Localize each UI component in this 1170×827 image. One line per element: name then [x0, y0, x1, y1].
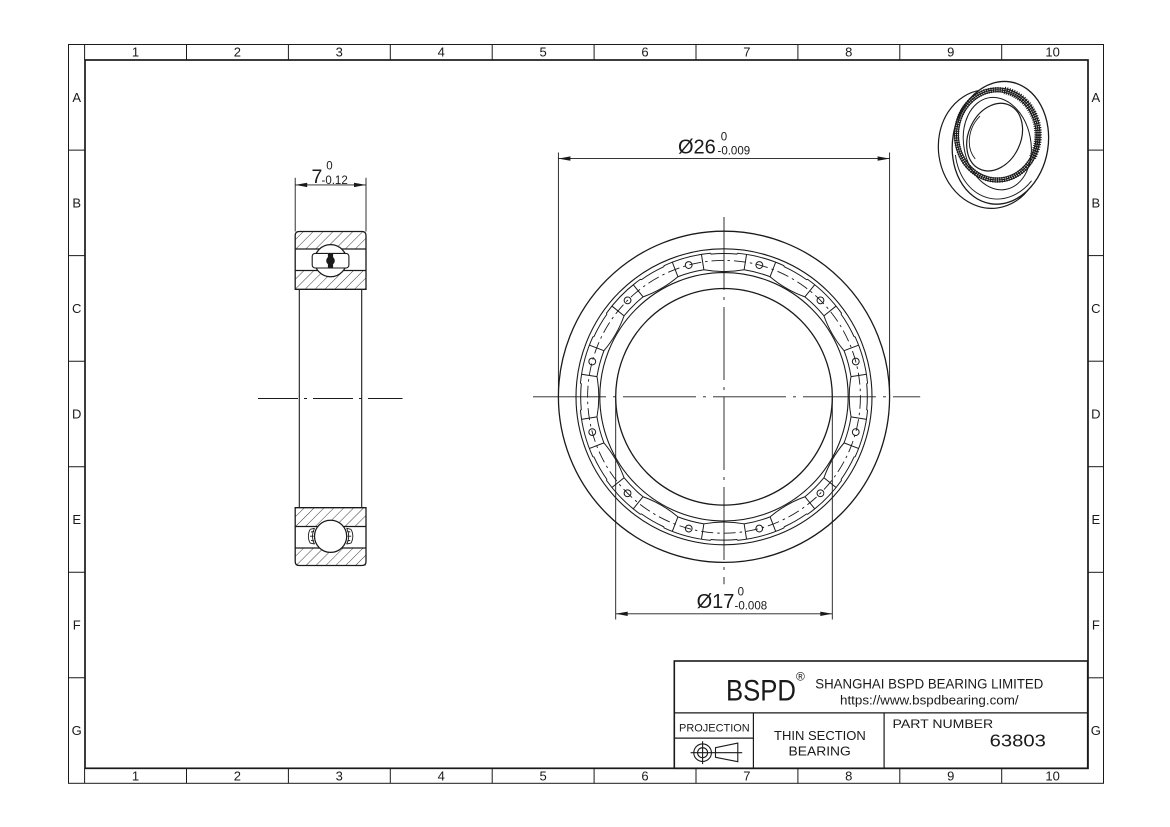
svg-text:10: 10 — [1045, 768, 1059, 783]
svg-text:9: 9 — [947, 768, 954, 783]
svg-text:0: 0 — [326, 161, 332, 173]
svg-text:2: 2 — [234, 45, 241, 60]
svg-text:E: E — [72, 512, 81, 527]
svg-text:C: C — [1091, 301, 1100, 316]
svg-text:4: 4 — [438, 45, 445, 60]
svg-text:PROJECTION: PROJECTION — [679, 723, 750, 735]
svg-text:8: 8 — [845, 768, 852, 783]
svg-text:-0.12: -0.12 — [322, 175, 348, 187]
svg-text:8: 8 — [845, 45, 852, 60]
svg-text:G: G — [72, 723, 82, 738]
svg-text:1: 1 — [132, 45, 139, 60]
svg-text:Ø17: Ø17 — [697, 591, 735, 613]
svg-text:A: A — [72, 90, 81, 105]
svg-text:0: 0 — [738, 587, 744, 599]
svg-text:-0.009: -0.009 — [718, 146, 751, 158]
svg-text:3: 3 — [336, 768, 343, 783]
svg-text:B: B — [72, 195, 81, 210]
svg-text:7: 7 — [743, 45, 750, 60]
svg-text:PART NUMBER: PART NUMBER — [893, 717, 994, 731]
svg-text:SHANGHAI BSPD BEARING LIMITED: SHANGHAI BSPD BEARING LIMITED — [815, 677, 1043, 692]
svg-text:3: 3 — [336, 45, 343, 60]
svg-text:C: C — [72, 301, 81, 316]
svg-text:®: ® — [796, 670, 805, 684]
svg-text:5: 5 — [539, 768, 546, 783]
svg-text:F: F — [73, 618, 81, 633]
svg-text:0: 0 — [721, 132, 727, 144]
svg-text:D: D — [1091, 406, 1100, 421]
svg-text:D: D — [72, 406, 81, 421]
svg-text:THIN SECTION: THIN SECTION — [774, 729, 866, 743]
svg-text:-0.008: -0.008 — [735, 600, 768, 612]
svg-text:G: G — [1091, 723, 1101, 738]
svg-text:E: E — [1091, 512, 1100, 527]
svg-text:4: 4 — [438, 768, 445, 783]
svg-text:F: F — [1092, 618, 1100, 633]
svg-text:Ø26: Ø26 — [678, 137, 716, 159]
svg-text:BSPD: BSPD — [726, 674, 796, 707]
svg-text:BEARING: BEARING — [789, 744, 851, 758]
svg-text:1: 1 — [132, 768, 139, 783]
svg-text:7: 7 — [743, 768, 750, 783]
svg-text:https://www.bspdbearing.com/: https://www.bspdbearing.com/ — [840, 693, 1019, 708]
svg-text:2: 2 — [234, 768, 241, 783]
svg-text:A: A — [1091, 90, 1100, 105]
svg-text:6: 6 — [641, 45, 648, 60]
svg-text:10: 10 — [1045, 45, 1059, 60]
svg-text:9: 9 — [947, 45, 954, 60]
svg-text:B: B — [1091, 195, 1100, 210]
svg-text:6: 6 — [641, 768, 648, 783]
svg-text:63803: 63803 — [990, 730, 1046, 750]
svg-text:5: 5 — [539, 45, 546, 60]
